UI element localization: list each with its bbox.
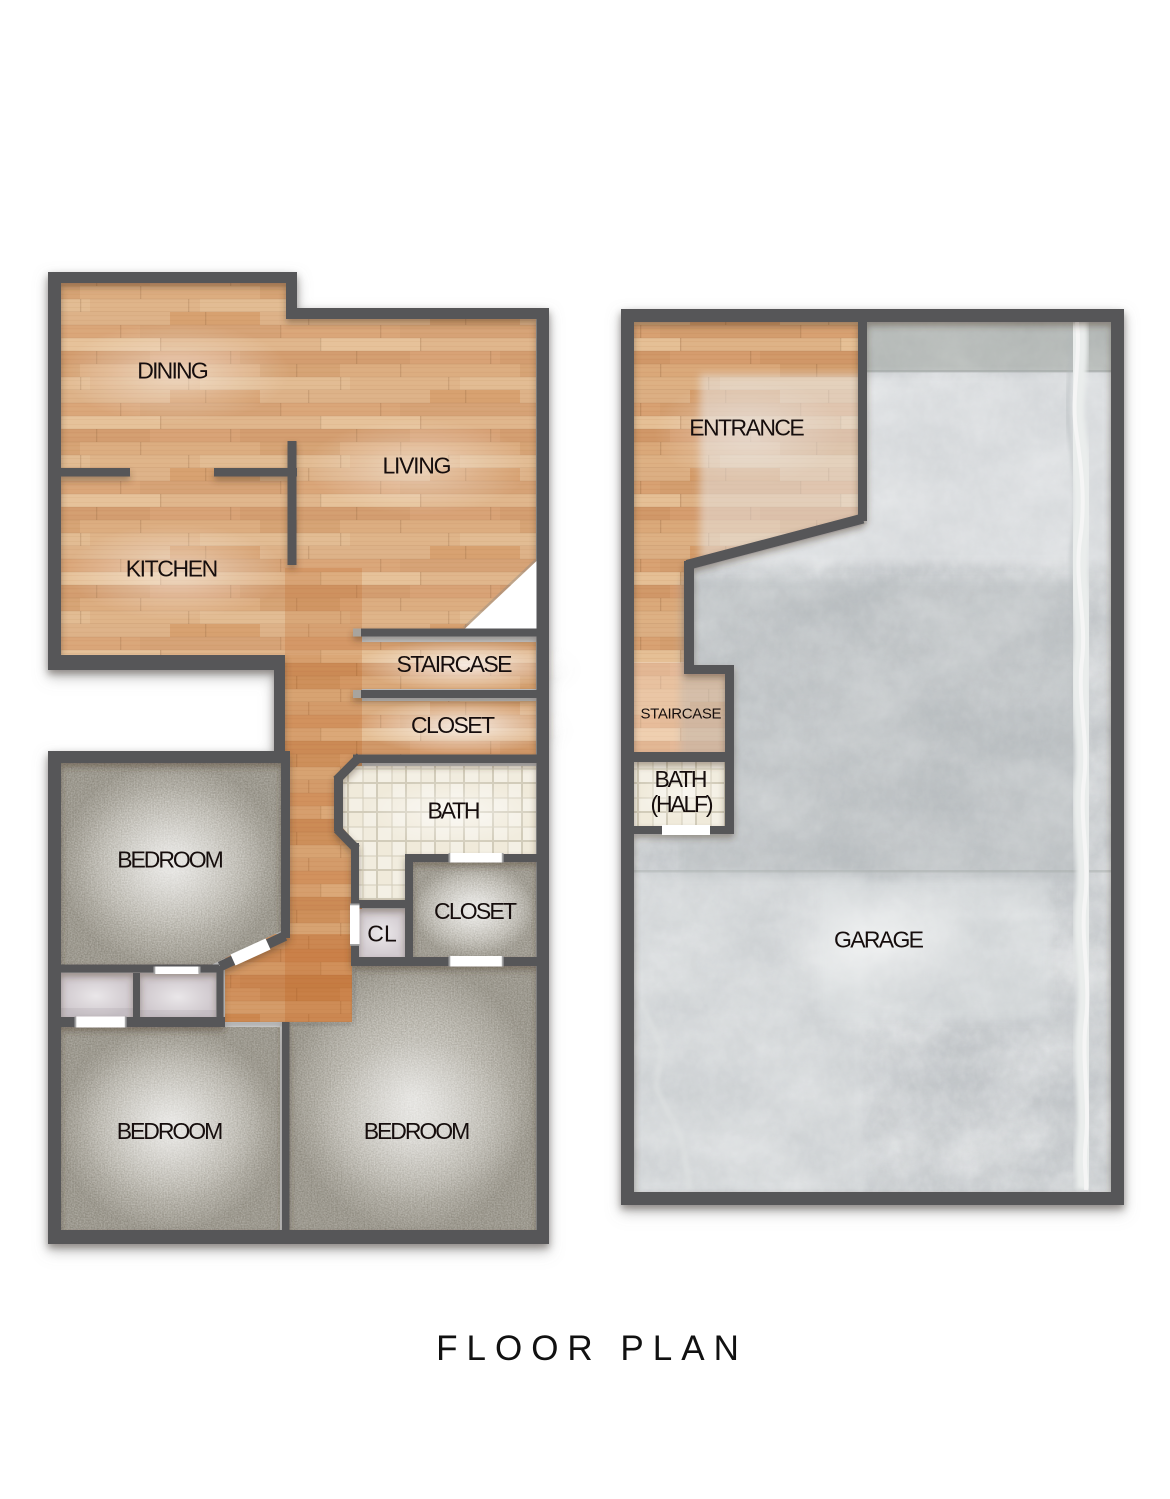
svg-text:BEDROOM: BEDROOM [117,847,224,873]
svg-text:DINING: DINING [137,358,209,384]
svg-text:ENTRANCE: ENTRANCE [689,415,805,441]
svg-text:CL: CL [367,921,397,947]
svg-text:LIVING: LIVING [383,453,452,479]
svg-text:CLOSET: CLOSET [411,712,495,738]
svg-text:KITCHEN: KITCHEN [126,556,219,582]
svg-text:BATH: BATH [428,798,481,824]
svg-text:CLOSET: CLOSET [434,898,517,924]
svg-text:BEDROOM: BEDROOM [117,1118,224,1144]
svg-text:STAIRCASE: STAIRCASE [397,651,513,677]
svg-text:FLOOR PLAN: FLOOR PLAN [436,1329,748,1368]
svg-text:GARAGE: GARAGE [834,927,924,953]
svg-text:BATH: BATH [655,766,708,792]
svg-text:(HALF): (HALF) [651,791,714,817]
svg-text:STAIRCASE: STAIRCASE [641,706,722,723]
svg-text:BEDROOM: BEDROOM [364,1118,471,1144]
